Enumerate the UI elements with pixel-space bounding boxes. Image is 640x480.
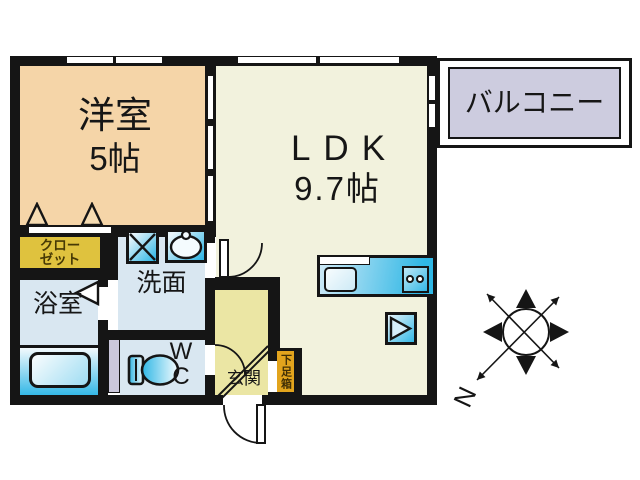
compass-point-down	[516, 356, 536, 375]
compass-rose: N	[450, 270, 595, 415]
shoe-box-label: 下足箱	[278, 354, 294, 390]
shoe-box-label-bg: 下足箱	[277, 351, 294, 392]
window-western-top-2	[115, 56, 163, 64]
western-room-label: 洋室	[40, 97, 190, 136]
western-room-size: 5帖	[40, 142, 190, 177]
closet-opening	[28, 226, 112, 234]
entrance-label: 玄関	[219, 370, 269, 388]
window-ldk-top-1	[237, 56, 317, 64]
sliding-partition-panel-1	[207, 75, 214, 120]
sliding-partition-panel-3	[207, 175, 214, 222]
wc-label-line2: C	[167, 364, 195, 389]
wall-hall-right	[268, 290, 280, 348]
kitchen-sink-icon	[324, 267, 357, 292]
washroom-label: 洗面	[118, 270, 205, 296]
wc-label: W C	[167, 339, 195, 389]
closet-door-icon	[24, 202, 109, 227]
stove-burner-left	[406, 275, 414, 283]
balcony-label: バルコニー	[465, 88, 604, 117]
balcony-window-1	[428, 75, 436, 101]
washroom-door-icon	[214, 235, 266, 283]
compass-point-left	[483, 322, 502, 342]
balcony-area: バルコニー	[448, 67, 621, 139]
entrance-door-icon	[218, 399, 273, 454]
floor-plan: バルコニー	[0, 0, 640, 480]
balcony-window-2	[428, 103, 436, 128]
ldk-size: 9.7帖	[245, 172, 430, 207]
compass-north-label: N	[450, 382, 483, 412]
closet-label: クロー ゼット	[20, 239, 100, 267]
stove-burner-right	[416, 275, 424, 283]
stove-icon	[402, 266, 429, 293]
closet-label-line2: ゼット	[20, 253, 100, 267]
sliding-partition-panel-2	[207, 125, 214, 170]
compass-point-right	[550, 322, 569, 342]
wc-label-line1: W	[167, 339, 195, 364]
ldk-label: LDK	[252, 131, 437, 168]
refrigerator-icon	[385, 312, 417, 345]
pipe-space	[108, 339, 120, 393]
bathroom-label: 浴室	[18, 291, 98, 317]
bathtub-icon	[29, 352, 91, 388]
kitchen-counter-pass	[319, 256, 370, 265]
window-western-top-1	[66, 56, 114, 64]
laundry-sink-icon	[165, 229, 207, 263]
window-ldk-top-2	[319, 56, 400, 64]
compass-point-up	[516, 289, 536, 308]
washing-machine-pan-icon	[126, 230, 159, 264]
